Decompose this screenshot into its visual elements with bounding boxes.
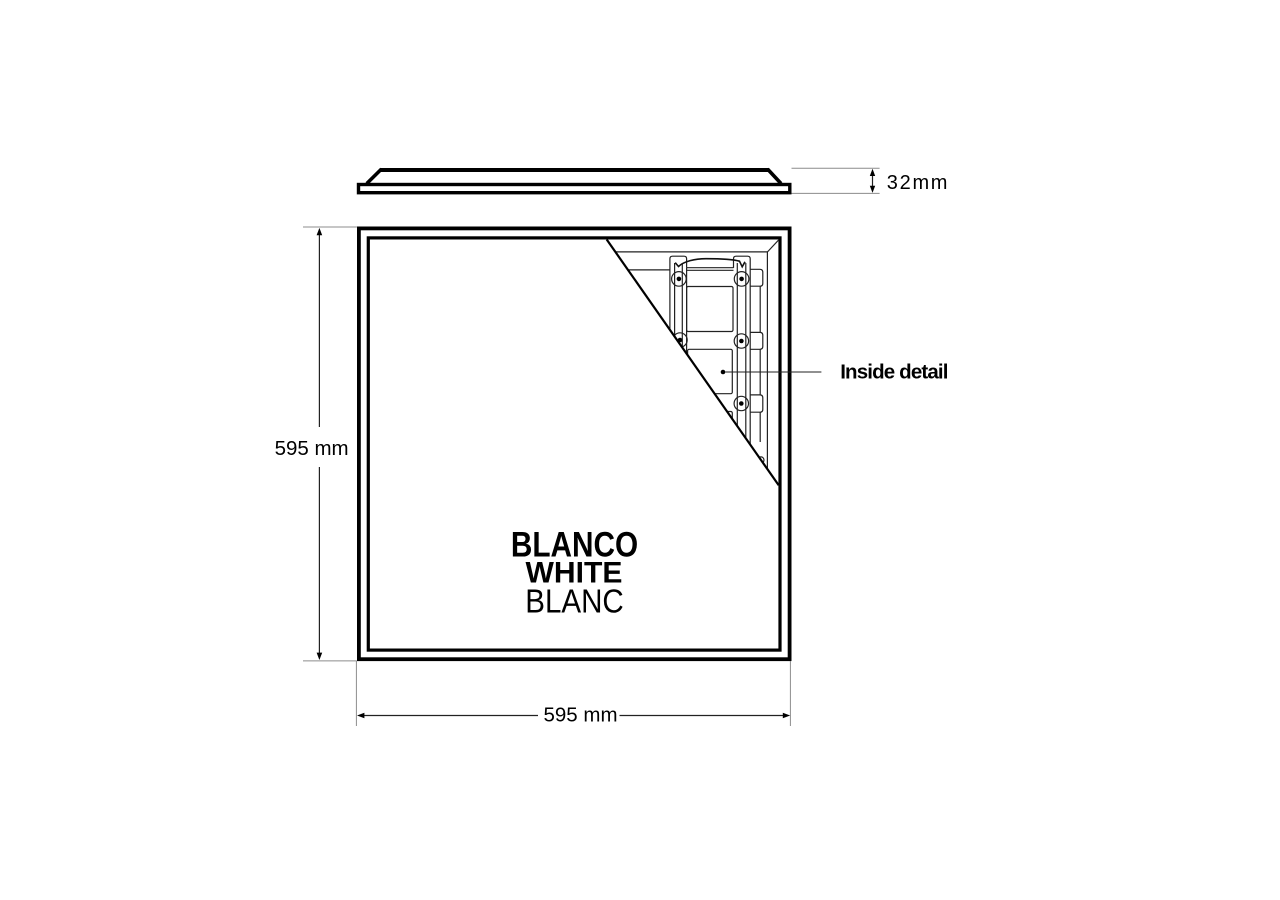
svg-text:595 mm: 595 mm — [275, 437, 349, 460]
svg-text:595 mm: 595 mm — [543, 704, 617, 727]
svg-text:BLANC: BLANC — [525, 584, 624, 621]
svg-text:32mm: 32mm — [887, 172, 949, 194]
svg-text:Inside detail: Inside detail — [840, 361, 948, 384]
